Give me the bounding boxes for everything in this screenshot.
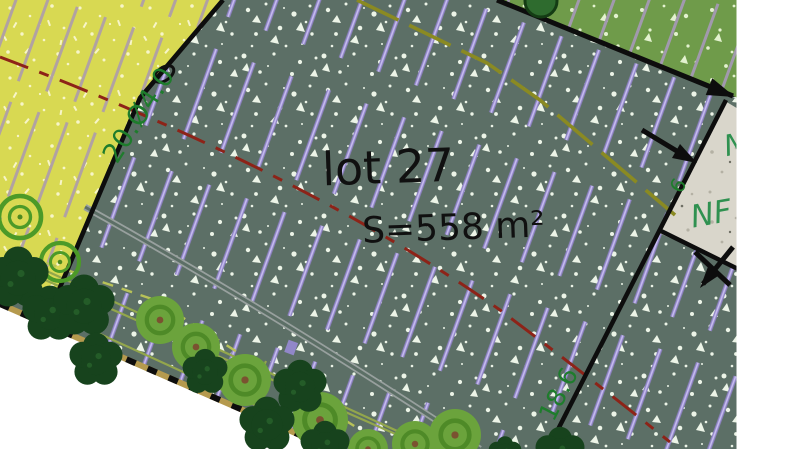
lot-area-label: S=558 m² (361, 204, 545, 251)
lot-number-label: lot 27 (321, 138, 455, 197)
cadastral-plan-view[interactable]: N lot 27 S=558 m² 20.Ø4.0 18.6 6 NF (0, 0, 800, 449)
sheet-margin (737, 0, 800, 449)
zone-nf-label: NF (688, 193, 736, 236)
plan-canvas[interactable]: N lot 27 S=558 m² 20.Ø4.0 18.6 6 NF (0, 0, 800, 449)
